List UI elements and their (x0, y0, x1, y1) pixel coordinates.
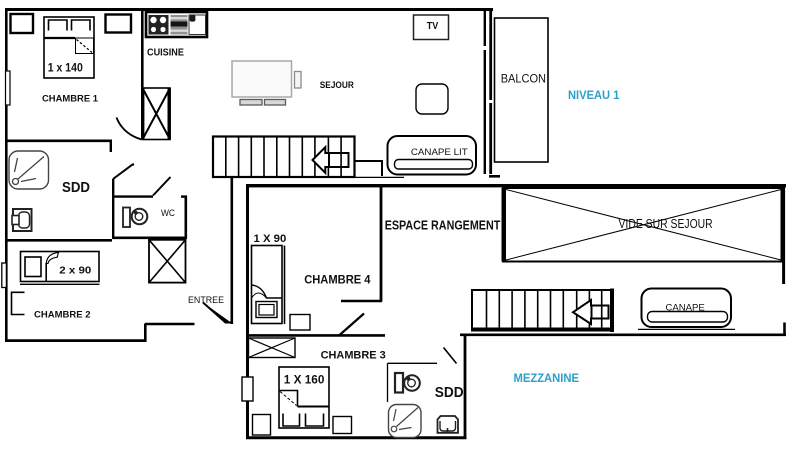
svg-text:1 X 90: 1 X 90 (254, 233, 287, 245)
svg-text:ESPACE RANGEMENT: ESPACE RANGEMENT (385, 218, 501, 233)
svg-text:CHAMBRE 1: CHAMBRE 1 (42, 93, 99, 104)
svg-text:MEZZANINE: MEZZANINE (514, 371, 580, 385)
svg-text:NIVEAU 1: NIVEAU 1 (568, 88, 620, 102)
svg-text:SDD: SDD (435, 385, 464, 401)
svg-text:BALCON: BALCON (501, 74, 546, 86)
svg-text:CUISINE: CUISINE (147, 48, 184, 59)
svg-text:TV: TV (427, 21, 439, 32)
svg-text:WC: WC (161, 208, 175, 219)
svg-text:SEJOUR: SEJOUR (320, 80, 354, 91)
svg-text:1 X 160: 1 X 160 (284, 372, 325, 386)
svg-text:CHAMBRE 2: CHAMBRE 2 (34, 309, 91, 320)
svg-text:CANAPE LIT: CANAPE LIT (411, 147, 468, 157)
svg-text:CHAMBRE 4: CHAMBRE 4 (304, 275, 371, 287)
svg-text:2 x 90: 2 x 90 (59, 264, 91, 276)
svg-text:1 x 140: 1 x 140 (48, 62, 83, 74)
svg-text:VIDE SUR SEJOUR: VIDE SUR SEJOUR (619, 216, 713, 231)
svg-text:CHAMBRE 3: CHAMBRE 3 (321, 349, 386, 361)
svg-text:SDD: SDD (62, 180, 90, 196)
